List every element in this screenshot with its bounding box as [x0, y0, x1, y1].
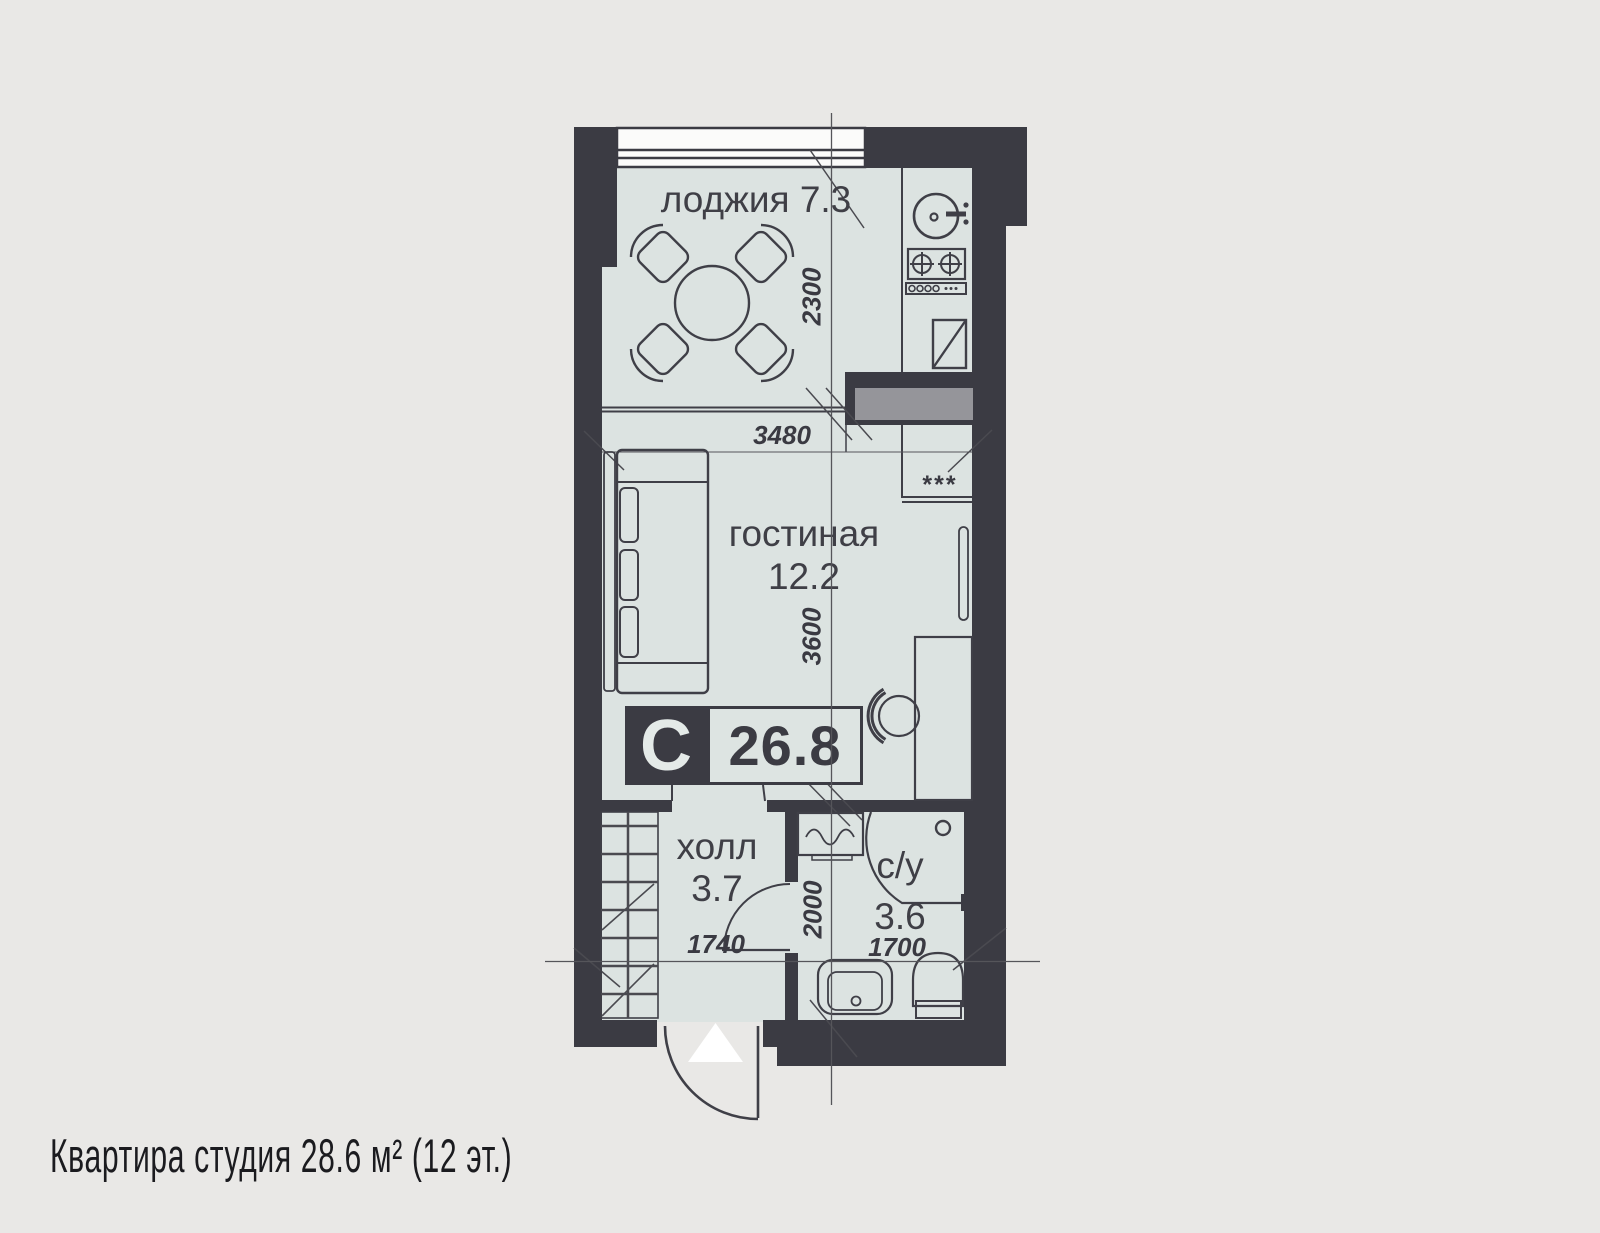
room-name-hall: холл [642, 826, 792, 868]
freezer-slot-mark: *** [900, 471, 980, 500]
wall-corner-block [972, 127, 1027, 226]
room-area-hall: 3.7 [642, 868, 792, 910]
vent-duct [855, 388, 973, 420]
dim-bath-width: 1700 [837, 932, 957, 963]
room-label-bathroom: с/у 3.6 [840, 840, 960, 942]
room-name-bathroom: с/у [840, 840, 960, 891]
dim-hall-width: 1740 [656, 929, 776, 960]
apartment-type-letter: С [640, 705, 692, 787]
wall-divider-bottom [785, 953, 798, 1020]
balcony-glazing [617, 128, 865, 167]
wall-bottom-left [574, 1020, 657, 1047]
room-name-loggia: лоджия [661, 179, 790, 220]
plan-caption: Квартира студия 28.6 м² (12 эт.) [50, 1128, 512, 1183]
shower-wall-stub [961, 894, 980, 911]
room-name-living: гостиная [674, 512, 934, 555]
room-area-loggia: 7.3 [800, 179, 851, 220]
apartment-area-badge: 26.8 [707, 706, 863, 785]
room-label-hall: холл 3.7 [642, 826, 792, 910]
apartment-type-badge: С [625, 706, 707, 785]
wall-right [972, 226, 1006, 812]
wall-mid-right [767, 800, 1006, 812]
wall-right-bathroom [964, 810, 1006, 1020]
dim-living-depth: 3600 [797, 577, 828, 697]
wall-bottom-right-a [763, 1020, 777, 1047]
wall-left [574, 265, 602, 1047]
apartment-total-area: 26.8 [729, 713, 842, 778]
entry-triangle-icon [688, 1023, 743, 1062]
floor-plan-canvas: лоджия 7.3 гостиная 12.2 холл 3.7 с/у 3.… [0, 0, 1600, 1233]
dim-bath-door-wall: 2000 [798, 850, 829, 970]
dim-loggia-depth: 2300 [797, 237, 828, 357]
wall-bottom-right-b [777, 1020, 1006, 1066]
room-label-loggia: лоджия 7.3 [596, 178, 916, 221]
dim-living-width: 3480 [722, 420, 842, 451]
wall-mid-left [600, 800, 672, 812]
